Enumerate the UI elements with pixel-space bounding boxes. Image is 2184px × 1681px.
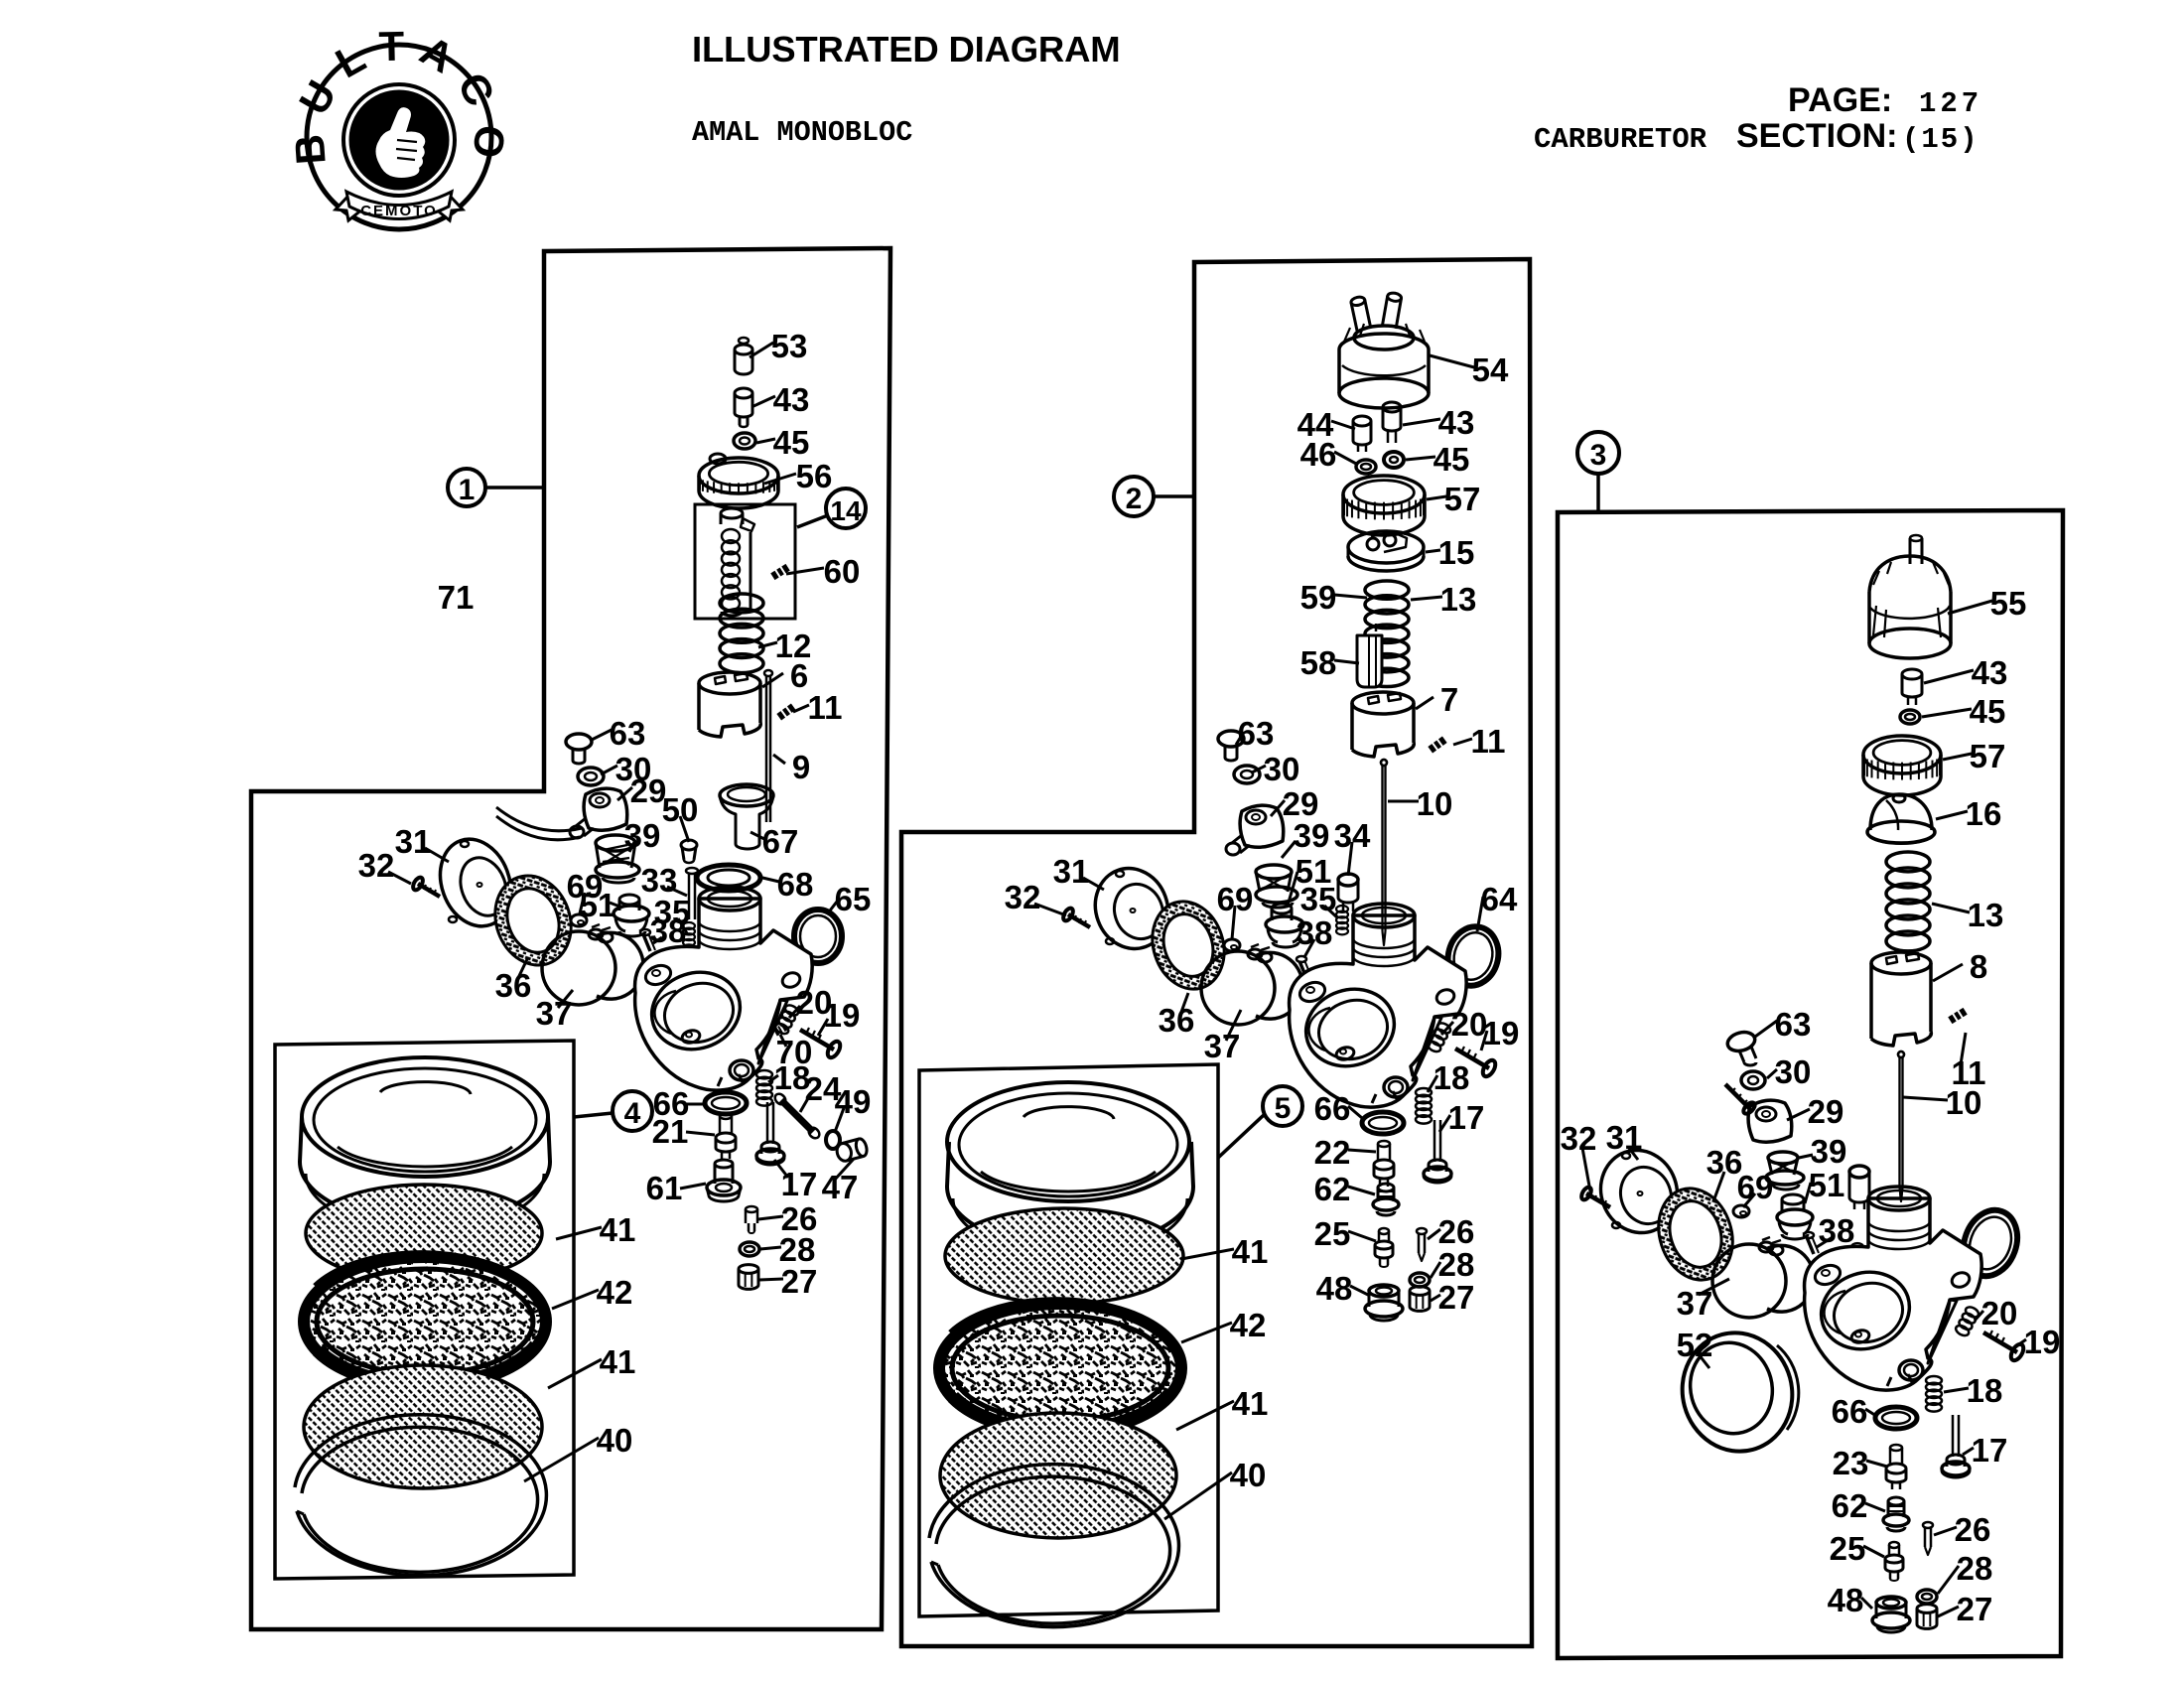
svg-text:57: 57 bbox=[1970, 738, 2006, 774]
svg-text:18: 18 bbox=[1433, 1059, 1470, 1096]
svg-text:50: 50 bbox=[662, 791, 699, 828]
svg-text:11: 11 bbox=[1471, 723, 1506, 760]
svg-text:2: 2 bbox=[1126, 483, 1143, 515]
svg-text:41: 41 bbox=[1232, 1233, 1269, 1270]
svg-text:17: 17 bbox=[781, 1166, 818, 1202]
svg-text:39: 39 bbox=[1294, 817, 1330, 854]
svg-text:53: 53 bbox=[771, 328, 808, 364]
svg-text:42: 42 bbox=[1230, 1307, 1267, 1343]
svg-text:CARBURETOR: CARBURETOR bbox=[1534, 123, 1707, 156]
svg-text:45: 45 bbox=[1433, 441, 1470, 478]
svg-text:61: 61 bbox=[646, 1170, 683, 1206]
svg-text:8: 8 bbox=[1970, 948, 1987, 985]
svg-text:55: 55 bbox=[1990, 585, 2027, 622]
svg-text:PAGE:: PAGE: bbox=[1788, 81, 1892, 119]
svg-text:59: 59 bbox=[1300, 579, 1337, 616]
svg-text:38: 38 bbox=[1297, 914, 1333, 951]
svg-text:40: 40 bbox=[1230, 1457, 1267, 1493]
svg-text:13: 13 bbox=[1968, 897, 2004, 933]
svg-text:30: 30 bbox=[1775, 1053, 1812, 1090]
svg-text:68: 68 bbox=[777, 866, 814, 903]
svg-text:60: 60 bbox=[824, 553, 861, 590]
svg-text:58: 58 bbox=[1300, 644, 1337, 681]
svg-text:45: 45 bbox=[773, 424, 810, 461]
svg-text:39: 39 bbox=[1811, 1133, 1847, 1170]
svg-text:17: 17 bbox=[1448, 1099, 1485, 1136]
svg-text:19: 19 bbox=[824, 997, 861, 1034]
svg-text:45: 45 bbox=[1970, 693, 2006, 730]
svg-text:4: 4 bbox=[624, 1097, 641, 1130]
svg-text:28: 28 bbox=[1438, 1246, 1475, 1283]
svg-text:27: 27 bbox=[1957, 1591, 1993, 1627]
svg-text:6: 6 bbox=[790, 657, 808, 694]
svg-text:AMAL MONOBLOC: AMAL MONOBLOC bbox=[692, 116, 912, 149]
svg-text:18: 18 bbox=[1967, 1372, 2003, 1409]
svg-text:3: 3 bbox=[1590, 439, 1607, 472]
svg-text:23: 23 bbox=[1833, 1445, 1869, 1481]
svg-text:27: 27 bbox=[1438, 1279, 1475, 1316]
svg-text:31: 31 bbox=[1053, 853, 1090, 890]
svg-text:41: 41 bbox=[600, 1343, 636, 1380]
svg-text:67: 67 bbox=[762, 823, 799, 860]
svg-text:11: 11 bbox=[808, 689, 843, 726]
svg-text:66: 66 bbox=[1832, 1393, 1868, 1430]
svg-text:37: 37 bbox=[536, 995, 573, 1032]
svg-text:36: 36 bbox=[495, 967, 532, 1004]
svg-text:65: 65 bbox=[835, 881, 872, 917]
svg-text:7: 7 bbox=[1440, 681, 1458, 718]
svg-text:57: 57 bbox=[1444, 481, 1481, 517]
svg-text:10: 10 bbox=[1946, 1084, 1982, 1121]
svg-text:51: 51 bbox=[580, 887, 616, 923]
svg-text:71: 71 bbox=[438, 579, 475, 616]
svg-text:37: 37 bbox=[1204, 1028, 1241, 1064]
svg-text:63: 63 bbox=[1775, 1006, 1812, 1043]
svg-text:(15): (15) bbox=[1902, 123, 1979, 156]
svg-text:CEMOTO: CEMOTO bbox=[360, 203, 438, 219]
svg-text:51: 51 bbox=[1809, 1167, 1845, 1203]
svg-text:54: 54 bbox=[1472, 351, 1509, 388]
svg-text:41: 41 bbox=[1232, 1385, 1269, 1422]
svg-text:43: 43 bbox=[1438, 404, 1475, 441]
svg-text:43: 43 bbox=[773, 381, 810, 418]
svg-text:ILLUSTRATED DIAGRAM: ILLUSTRATED DIAGRAM bbox=[692, 29, 1120, 70]
svg-text:20: 20 bbox=[1981, 1295, 2018, 1331]
svg-text:5: 5 bbox=[1275, 1092, 1292, 1125]
svg-text:25: 25 bbox=[1314, 1215, 1351, 1252]
svg-text:14: 14 bbox=[830, 495, 862, 526]
svg-text:32: 32 bbox=[1561, 1120, 1597, 1157]
svg-text:26: 26 bbox=[1438, 1213, 1475, 1250]
svg-text:31: 31 bbox=[395, 823, 432, 860]
svg-text:21: 21 bbox=[652, 1113, 689, 1150]
svg-text:19: 19 bbox=[1483, 1015, 1520, 1051]
svg-text:127: 127 bbox=[1919, 87, 1982, 120]
svg-text:26: 26 bbox=[1955, 1511, 1991, 1548]
svg-text:32: 32 bbox=[358, 847, 395, 884]
svg-text:62: 62 bbox=[1832, 1487, 1868, 1524]
svg-text:38: 38 bbox=[650, 912, 687, 949]
svg-text:36: 36 bbox=[1159, 1002, 1195, 1039]
svg-text:31: 31 bbox=[1606, 1119, 1643, 1156]
svg-text:43: 43 bbox=[1972, 654, 2008, 691]
svg-text:SECTION:: SECTION: bbox=[1736, 117, 1897, 155]
svg-text:29: 29 bbox=[1808, 1093, 1844, 1130]
svg-text:17: 17 bbox=[1972, 1432, 2008, 1469]
svg-text:30: 30 bbox=[1264, 751, 1300, 787]
svg-text:56: 56 bbox=[796, 458, 833, 494]
svg-text:42: 42 bbox=[597, 1274, 633, 1311]
svg-text:15: 15 bbox=[1438, 534, 1475, 571]
svg-text:52: 52 bbox=[1677, 1327, 1713, 1363]
svg-text:66: 66 bbox=[1314, 1090, 1351, 1127]
svg-text:64: 64 bbox=[1481, 881, 1518, 917]
svg-text:28: 28 bbox=[1957, 1550, 1993, 1587]
svg-text:22: 22 bbox=[1314, 1134, 1351, 1171]
svg-text:62: 62 bbox=[1314, 1171, 1351, 1207]
svg-text:9: 9 bbox=[792, 749, 810, 785]
svg-text:48: 48 bbox=[1828, 1582, 1864, 1618]
svg-text:48: 48 bbox=[1316, 1270, 1353, 1307]
svg-text:27: 27 bbox=[781, 1263, 818, 1300]
svg-text:1: 1 bbox=[459, 474, 476, 506]
svg-text:63: 63 bbox=[610, 715, 646, 752]
svg-text:13: 13 bbox=[1440, 581, 1477, 618]
svg-text:32: 32 bbox=[1005, 879, 1041, 915]
svg-text:40: 40 bbox=[597, 1422, 633, 1459]
svg-text:69: 69 bbox=[1737, 1169, 1774, 1205]
svg-text:41: 41 bbox=[600, 1211, 636, 1248]
svg-text:46: 46 bbox=[1300, 436, 1337, 473]
svg-text:10: 10 bbox=[1417, 785, 1453, 822]
svg-text:16: 16 bbox=[1966, 795, 2002, 832]
svg-text:19: 19 bbox=[2024, 1324, 2061, 1360]
svg-text:25: 25 bbox=[1830, 1530, 1866, 1567]
